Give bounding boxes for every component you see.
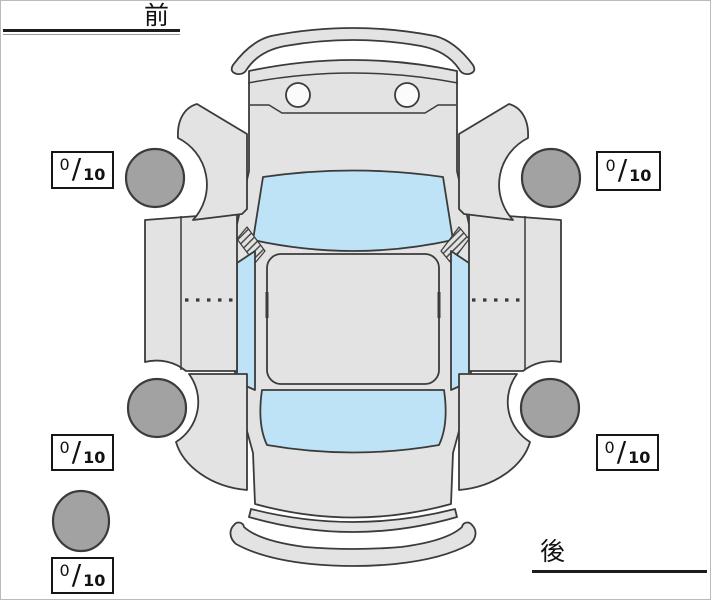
rear-label-underline	[532, 570, 707, 573]
score-separator: /	[72, 155, 81, 183]
score-max: 10	[83, 573, 105, 589]
score-max: 10	[83, 167, 105, 183]
side-window-right-glass	[451, 251, 469, 390]
side-window-left-glass	[237, 251, 255, 390]
score-max: 10	[628, 450, 650, 466]
tire-score-rear-left: 0 / 10	[51, 434, 114, 471]
fender-rear-left	[176, 374, 247, 490]
wheel-front-right	[522, 149, 580, 207]
tire-score-spare: 0 / 10	[51, 557, 114, 594]
spare-tire	[53, 491, 109, 551]
score-separator: /	[72, 561, 81, 589]
windshield-glass	[253, 171, 453, 252]
wheel-front-left	[126, 149, 184, 207]
score-value: 0	[605, 440, 615, 456]
fender-front-right	[459, 104, 528, 220]
fender-front-left	[178, 104, 247, 220]
car-top-view-diagram	[1, 1, 710, 599]
score-value: 0	[60, 157, 70, 173]
score-value: 0	[60, 440, 70, 456]
door-panel-right	[469, 213, 561, 371]
score-max: 10	[629, 168, 651, 184]
tire-score-rear-right: 0 / 10	[596, 434, 659, 471]
score-value: 0	[606, 158, 616, 174]
tire-score-front-right: 0 / 10	[596, 151, 661, 191]
score-max: 10	[83, 450, 105, 466]
score-separator: /	[617, 438, 626, 466]
headlight-right-icon	[395, 83, 419, 107]
wheel-rear-left	[128, 379, 186, 437]
score-value: 0	[60, 563, 70, 579]
headlight-left-icon	[286, 83, 310, 107]
front-orientation-label: 前	[1, 2, 180, 30]
fender-rear-right	[459, 374, 530, 490]
roof-panel	[267, 254, 439, 384]
door-panel-left	[145, 213, 237, 371]
wheel-rear-right	[521, 379, 579, 437]
rear-orientation-label: 後	[540, 538, 565, 566]
front-label-underline-shadow	[3, 34, 180, 35]
inspection-diagram-page: 0 / 10 0 / 10 0 / 10 0 / 10 0 / 10 前 後	[0, 0, 711, 600]
tire-score-front-left: 0 / 10	[51, 151, 114, 189]
score-separator: /	[618, 156, 627, 184]
score-separator: /	[72, 438, 81, 466]
rear-window-glass	[260, 390, 445, 453]
front-label-underline	[3, 29, 180, 32]
